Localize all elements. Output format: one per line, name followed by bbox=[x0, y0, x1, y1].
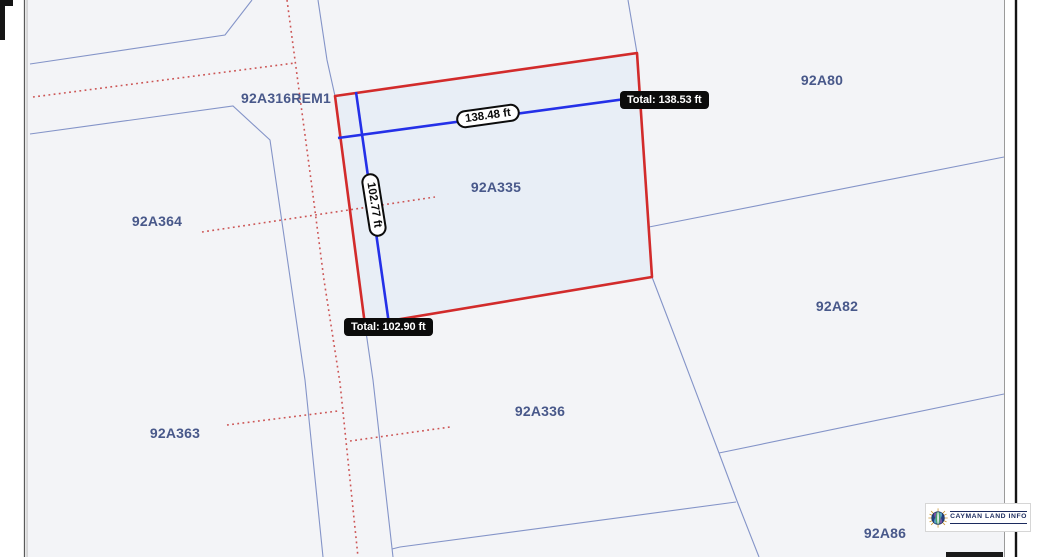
parcel-label-92A82[interactable]: 92A82 bbox=[816, 298, 858, 314]
map-canvas[interactable] bbox=[0, 0, 1040, 557]
map-viewport[interactable]: 92A316REM1 92A364 92A363 92A335 92A336 9… bbox=[0, 0, 1040, 557]
parcel-label-92A364[interactable]: 92A364 bbox=[132, 213, 182, 229]
globe-icon bbox=[928, 505, 948, 531]
parcel-label-92A335[interactable]: 92A335 bbox=[471, 179, 521, 195]
scalebar-fragment bbox=[946, 552, 1003, 557]
measure-total-tooltip-left: Total: 102.90 ft bbox=[344, 318, 433, 336]
parcel-label-92A336[interactable]: 92A336 bbox=[515, 403, 565, 419]
logo-text: CAYMAN LAND INFO bbox=[950, 514, 1027, 521]
parcel-label-92A80[interactable]: 92A80 bbox=[801, 72, 843, 88]
logo-band: CAYMAN LAND INFO bbox=[950, 511, 1027, 524]
parcel-label-92A316REM1[interactable]: 92A316REM1 bbox=[241, 90, 331, 106]
frame-corner-cap bbox=[0, 0, 13, 6]
parcel-label-92A363[interactable]: 92A363 bbox=[150, 425, 200, 441]
parcel-label-92A86[interactable]: 92A86 bbox=[864, 525, 906, 541]
measure-total-tooltip-top: Total: 138.53 ft bbox=[620, 91, 709, 109]
cayman-land-info-logo: CAYMAN LAND INFO bbox=[925, 503, 1031, 532]
